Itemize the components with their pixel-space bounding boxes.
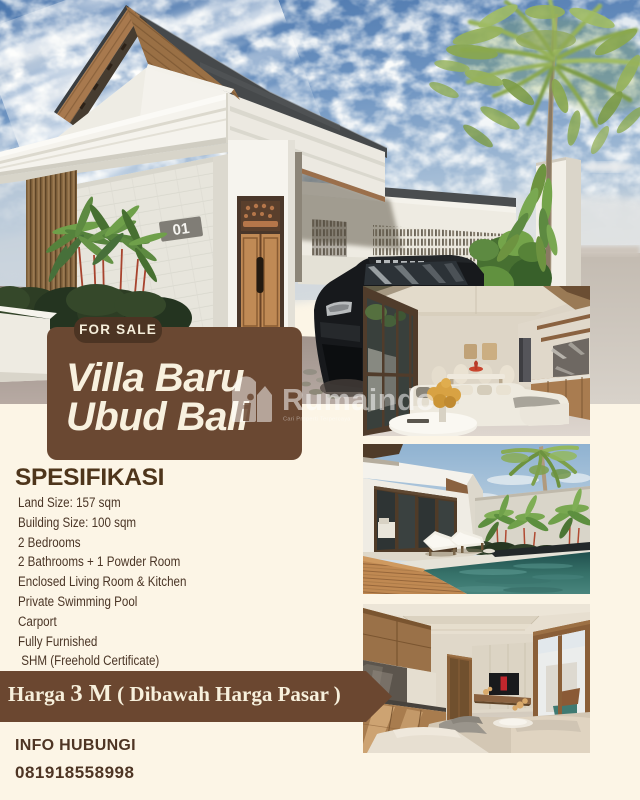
svg-text:01: 01: [172, 220, 191, 239]
svg-text:Cari Properti Terpercaya: Cari Properti Terpercaya: [283, 417, 351, 423]
svg-text:Rumaindo: Rumaindo: [282, 383, 435, 417]
